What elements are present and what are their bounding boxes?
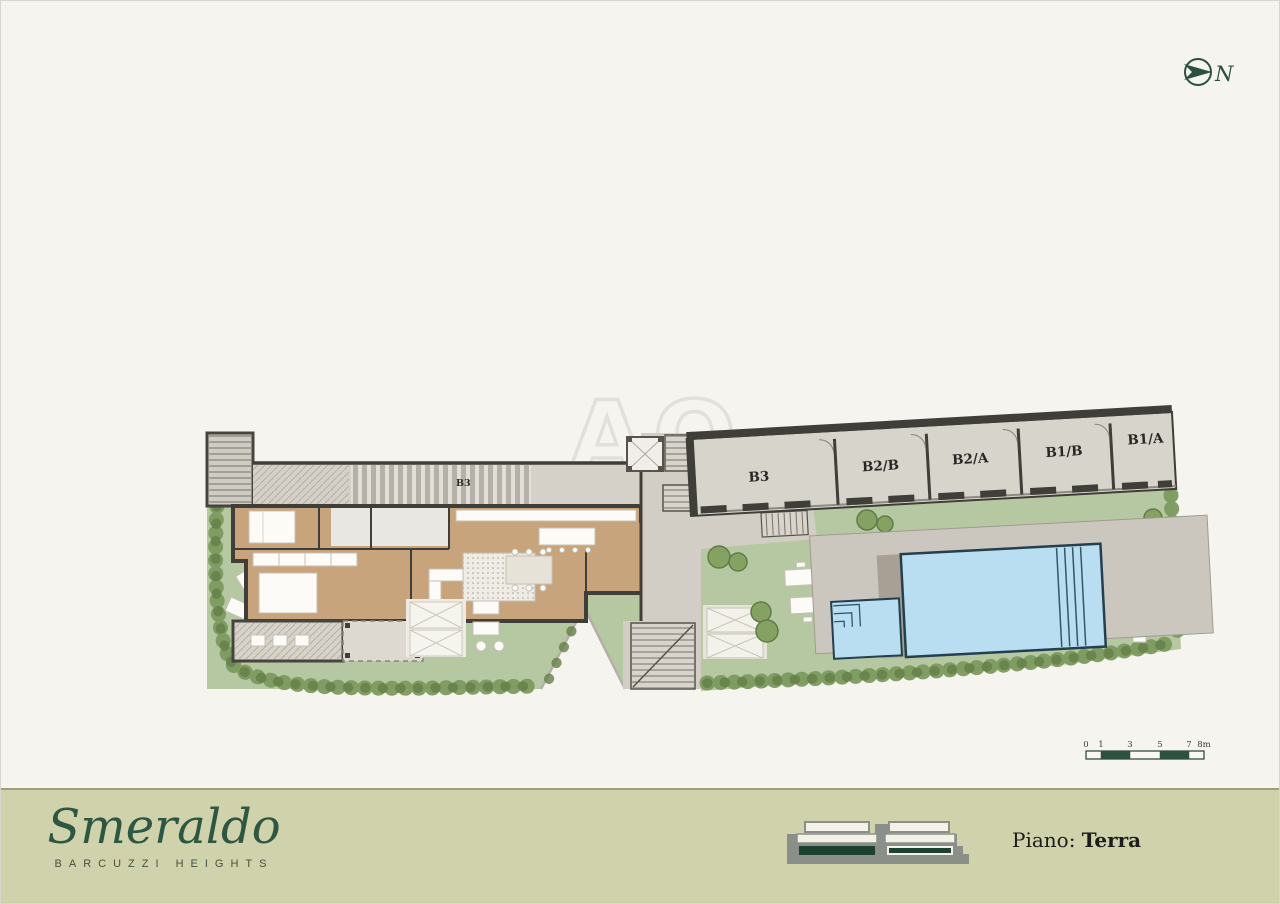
unit-label: B3 xyxy=(748,469,770,486)
building-elevation-icon xyxy=(783,812,978,868)
north-indicator: N xyxy=(1184,59,1234,86)
floor-label-value: Terra xyxy=(1082,828,1141,852)
floor-indicator: Piano: Terra xyxy=(783,812,1141,868)
svg-text:8m: 8m xyxy=(1197,740,1210,750)
kids-pool xyxy=(831,598,902,658)
north-label: N xyxy=(1214,62,1234,86)
svg-text:5: 5 xyxy=(1157,740,1162,750)
floor-plan-page: AO N B3 xyxy=(0,0,1280,904)
unit-label: B1/B xyxy=(1045,443,1083,461)
svg-text:1: 1 xyxy=(1098,740,1103,750)
svg-text:0: 0 xyxy=(1083,740,1088,750)
floor-label-prefix: Piano: xyxy=(1012,828,1075,852)
svg-text:3: 3 xyxy=(1127,740,1132,750)
brand-name: Smeraldo xyxy=(39,798,289,856)
outdoor-kitchen-patio xyxy=(233,621,423,661)
scale-bar: 0 1 3 5 7 8m xyxy=(1083,740,1210,759)
footer: Smeraldo BARCUZZI HEIGHTS Piano: Terra xyxy=(1,788,1279,903)
unit-label: B2/A xyxy=(952,450,990,468)
unit-label: B2/B xyxy=(862,457,900,475)
unit-label: B1/A xyxy=(1127,430,1165,448)
apartment-unit-label: B3 xyxy=(456,478,471,489)
svg-text:7: 7 xyxy=(1186,740,1191,750)
north-arrow-icon xyxy=(1184,64,1212,80)
brand-tagline: BARCUZZI HEIGHTS xyxy=(39,858,289,870)
floor-label: Piano: Terra xyxy=(1012,828,1141,852)
brand-logo: Smeraldo BARCUZZI HEIGHTS xyxy=(39,798,289,870)
site-plan: AO N B3 xyxy=(1,1,1279,791)
